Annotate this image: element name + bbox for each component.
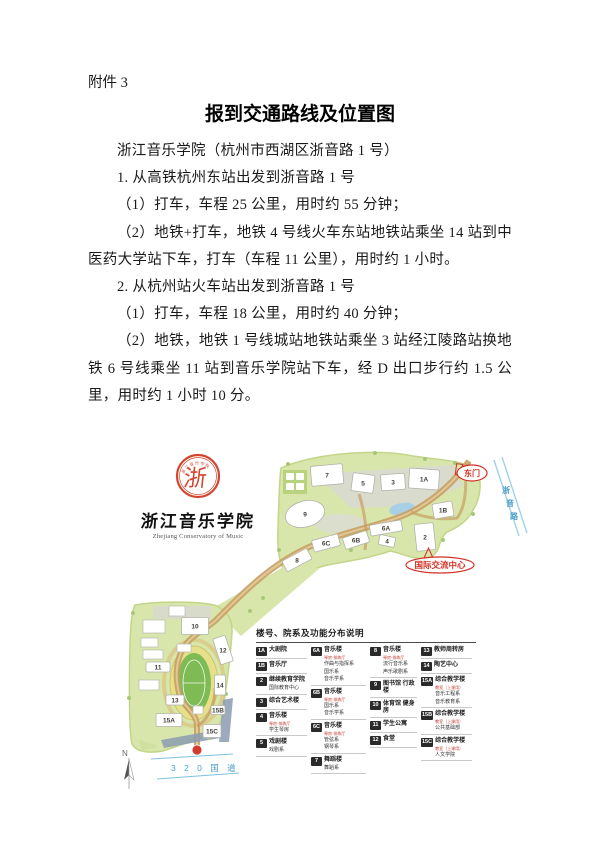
legend-entry-note: 琴房·排练厅 <box>269 721 290 726</box>
legend-entry-title: 音乐楼 <box>269 713 290 720</box>
legend-number-chip: 11 <box>370 721 381 730</box>
legend-entry-title: 音乐厅 <box>269 662 287 669</box>
legend-number-chip: 3 <box>256 698 267 707</box>
building-label-15B: 15B <box>212 707 224 714</box>
legend-entry-note: 教室（上课用） <box>435 719 465 724</box>
legend-number-chip: 1B <box>256 662 267 671</box>
building-label-7: 7 <box>325 472 329 479</box>
legend-entry-sub: 公共基础部 <box>435 725 465 732</box>
legend-entry-text: 戏剧楼戏剧系 <box>269 739 287 754</box>
logo-seal: 浙江音乐学院 浙 <box>138 452 258 500</box>
legend-number-chip: 5 <box>256 739 267 748</box>
legend-entry-text: 体育馆 健身房 <box>383 701 417 715</box>
legend-entry-sub: 作曲与指挥系 <box>324 661 354 668</box>
legend-column-1: 1A大剧院1B音乐厅2继续教育学院国际教育中心3综合艺术楼4音乐楼琴房·排练厅学… <box>256 647 311 777</box>
legend-number-chip: 7 <box>311 757 322 766</box>
legend-column-2: 6A音乐楼琴房·排练厅作曲与指挥系国乐系音乐学系6B音乐楼琴房·排练厅国乐系音乐… <box>311 647 370 777</box>
building-label-6C: 6C <box>322 540 331 547</box>
legend-entry-sub: 音乐工程系 <box>435 691 465 698</box>
building-label-2: 2 <box>423 534 427 541</box>
legend-entry-note: 琴房·排练厅 <box>324 697 345 702</box>
legend-number-chip: 12 <box>370 736 381 745</box>
legend-entry-text: 图书馆 行政楼 <box>383 681 417 695</box>
legend-number-chip: 15C <box>421 738 433 747</box>
body-paragraph: 1. 从高铁杭州东站出发到浙音路 1 号 <box>88 165 512 192</box>
building-label-8: 8 <box>295 557 299 564</box>
legend-entry-text: 音乐厅 <box>269 662 287 669</box>
legend-entry-sub: 音乐学系 <box>324 676 354 683</box>
document-text-block: 附件 3 报到交通路线及位置图 浙江音乐学院（杭州市西湖区浙音路 1 号）1. … <box>88 70 512 410</box>
legend-entry-sub: 声乐歌剧系 <box>383 669 408 676</box>
legend-entry-note: 教室（上课用） <box>435 685 465 690</box>
body-paragraph: （2）地铁，地铁 1 号线城站地铁站乘坐 3 站经江陵路站换地铁 6 号线乘坐 … <box>88 328 512 410</box>
legend-columns: 1A大剧院1B音乐厅2继续教育学院国际教育中心3综合艺术楼4音乐楼琴房·排练厅学… <box>256 647 476 777</box>
legend-number-chip: 15A <box>421 677 433 686</box>
legend-entry-6A: 6A音乐楼琴房·排练厅作曲与指挥系国乐系音乐学系 <box>311 647 366 686</box>
legend-entry-title: 音乐楼 <box>383 647 408 654</box>
legend-entry-text: 综合教学楼教室（上课用）人文学院 <box>435 738 465 759</box>
legend-entry-2: 2继续教育学院国际教育中心 <box>256 677 307 695</box>
legend-entry-11: 11学生公寓 <box>370 721 417 733</box>
legend-entry-sub: 国乐系 <box>324 703 345 710</box>
north-arrow: N <box>122 749 134 789</box>
building-label-1A: 1A <box>420 476 429 483</box>
legend-entry-14: 14陶艺中心 <box>421 662 472 674</box>
legend-entry-title: 舞蹈楼 <box>324 757 342 764</box>
svg-text:N: N <box>122 749 128 758</box>
legend-entry-sub: 钢琴系 <box>324 744 345 751</box>
building-label-10: 10 <box>191 623 199 630</box>
legend-entry-title: 音乐楼 <box>324 689 345 696</box>
legend-number-chip: 6B <box>311 689 322 698</box>
legend-entry-text: 食堂 <box>383 736 395 743</box>
legend-entry-10: 10体育馆 健身房 <box>370 701 417 718</box>
paragraph-list: 浙江音乐学院（杭州市西湖区浙音路 1 号）1. 从高铁杭州东站出发到浙音路 1 … <box>88 138 512 410</box>
legend-entry-6C: 6C音乐楼琴房·排练厅管弦系钢琴系 <box>311 723 366 754</box>
svg-text:路: 路 <box>510 511 519 521</box>
legend-entry-sub: 音乐学系 <box>324 710 345 717</box>
legend-entry-title: 食堂 <box>383 736 395 743</box>
body-paragraph: （1）打车，车程 18 公里，用时约 40 分钟； <box>88 301 512 328</box>
building-label-9: 9 <box>303 511 307 518</box>
legend-number-chip: 13 <box>421 647 432 656</box>
legend-number-chip: 6A <box>311 647 322 656</box>
legend-entry-9: 9图书馆 行政楼 <box>370 681 417 698</box>
building-label-12: 12 <box>219 647 227 654</box>
building-label-6A: 6A <box>382 525 391 532</box>
legend-entry-1B: 1B音乐厅 <box>256 662 307 674</box>
legend-entry-note: 教室（上课用） <box>435 746 465 751</box>
tennis-courts <box>283 470 307 494</box>
legend-entry-sub: 舞蹈系 <box>324 765 342 772</box>
legend-entry-text: 学生公寓 <box>383 721 407 728</box>
legend-entry-4: 4音乐楼琴房·排练厅学生琴房 <box>256 713 307 737</box>
legend-entry-text: 继续教育学院国际教育中心 <box>269 677 305 692</box>
legend-entry-title: 陶艺中心 <box>434 662 458 669</box>
building-label-6B: 6B <box>352 537 361 544</box>
legend-entry-15B: 15B综合教学楼教室（上课用）公共基础部 <box>421 711 472 735</box>
legend-entry-title: 音乐楼 <box>324 647 354 654</box>
legend-entry-text: 陶艺中心 <box>434 662 458 669</box>
body-paragraph: （1）打车，车程 25 公里，用时约 55 分钟； <box>88 192 512 219</box>
legend-entry-title: 戏剧楼 <box>269 739 287 746</box>
legend-number-chip: 1A <box>256 647 267 656</box>
building-label-14: 14 <box>216 682 224 689</box>
legend-entry-sub: 音乐教育系 <box>435 699 465 706</box>
legend-entry-sub: 戏剧系 <box>269 747 287 754</box>
legend-entry-6B: 6B音乐楼琴房·排练厅国乐系音乐学系 <box>311 689 366 720</box>
legend-entry-text: 教师周转房 <box>434 647 464 654</box>
legend-entry-text: 音乐楼琴房·排练厅学生琴房 <box>269 713 290 734</box>
legend-entry-text: 音乐楼琴房·排练厅国乐系音乐学系 <box>324 689 345 717</box>
map-legend: 楼号、院系及功能分布说明 1A大剧院1B音乐厅2继续教育学院国际教育中心3综合艺… <box>256 627 476 777</box>
legend-entry-text: 音乐楼琴房·排练厅管弦系钢琴系 <box>324 723 345 751</box>
legend-entry-sub: 学生琴房 <box>269 727 290 734</box>
building-label-15A: 15A <box>163 717 175 724</box>
intl-center-label: 国际交流中心 <box>414 560 466 570</box>
legend-title: 楼号、院系及功能分布说明 <box>256 627 476 643</box>
legend-number-chip: 4 <box>256 713 267 722</box>
legend-entry-title: 学生公寓 <box>383 721 407 728</box>
legend-entry-title: 体育馆 健身房 <box>383 701 417 715</box>
legend-entry-note: 琴房·排练厅 <box>383 655 408 660</box>
legend-entry-sub: 管弦系 <box>324 737 345 744</box>
national-road-label: 3 2 0 国 道 <box>171 763 239 773</box>
legend-column-4: 13教师周转房14陶艺中心15A综合教学楼教室（上课用）音乐工程系音乐教育系15… <box>421 647 476 777</box>
legend-entry-15A: 15A综合教学楼教室（上课用）音乐工程系音乐教育系 <box>421 677 472 708</box>
attachment-label: 附件 3 <box>88 70 512 96</box>
page-title: 报到交通路线及位置图 <box>88 100 512 130</box>
seal-monogram: 浙 <box>182 465 208 491</box>
legend-entry-15C: 15C综合教学楼教室（上课用）人文学院 <box>421 738 472 762</box>
east-gate-label: 东门 <box>464 468 480 478</box>
legend-entry-text: 舞蹈楼舞蹈系 <box>324 757 342 772</box>
building-label-13: 13 <box>171 697 179 704</box>
legend-entry-note: 琴房·排练厅 <box>324 655 354 660</box>
legend-entry-text: 综合教学楼教室（上课用）音乐工程系音乐教育系 <box>435 677 465 705</box>
building-label-11: 11 <box>155 664 162 671</box>
legend-entry-13: 13教师周转房 <box>421 647 472 659</box>
legend-number-chip: 8 <box>370 647 381 656</box>
legend-entry-title: 综合教学楼 <box>435 711 465 718</box>
legend-entry-title: 综合教学楼 <box>435 677 465 684</box>
legend-entry-sub: 国际教育中心 <box>269 685 305 692</box>
svg-text:音: 音 <box>506 498 514 508</box>
building-label-1B: 1B <box>439 507 448 514</box>
legend-entry-text: 大剧院 <box>269 647 287 654</box>
legend-entry-5: 5戏剧楼戏剧系 <box>256 739 307 757</box>
legend-entry-title: 大剧院 <box>269 647 287 654</box>
legend-entry-text: 音乐楼琴房·排练厅作曲与指挥系国乐系音乐学系 <box>324 647 354 683</box>
legend-entry-text: 综合艺术楼 <box>269 698 299 705</box>
zheyin-road-lines <box>494 457 527 536</box>
legend-entry-title: 综合教学楼 <box>435 738 465 745</box>
body-paragraph: （2）地铁+打车，地铁 4 号线火车东站地铁站乘坐 14 站到中医药大学站下车，… <box>88 220 512 274</box>
legend-number-chip: 6C <box>311 723 322 732</box>
legend-number-chip: 15B <box>421 711 433 720</box>
legend-entry-7: 7舞蹈楼舞蹈系 <box>311 757 366 775</box>
south-gate-marker <box>192 745 202 755</box>
building-label-15C: 15C <box>206 728 218 735</box>
legend-entry-3: 3综合艺术楼 <box>256 698 307 710</box>
building-label-5: 5 <box>361 480 365 487</box>
legend-entry-title: 继续教育学院 <box>269 677 305 684</box>
legend-entry-sub: 流行音乐系 <box>383 661 408 668</box>
school-logo: 浙江音乐学院 浙 浙江音乐学院 Zhejiang Conservatory of… <box>138 452 258 540</box>
legend-number-chip: 9 <box>370 681 381 690</box>
legend-entry-note: 琴房·排练厅 <box>324 731 345 736</box>
legend-column-3: 8音乐楼琴房·排练厅流行音乐系声乐歌剧系9图书馆 行政楼10体育馆 健身房11学… <box>370 647 421 777</box>
building-label-4: 4 <box>385 538 389 545</box>
body-paragraph: 浙江音乐学院（杭州市西湖区浙音路 1 号） <box>88 138 512 165</box>
legend-entry-title: 教师周转房 <box>434 647 464 654</box>
legend-entry-title: 图书馆 行政楼 <box>383 681 417 695</box>
legend-entry-sub: 人文学院 <box>435 752 465 759</box>
legend-entry-title: 综合艺术楼 <box>269 698 299 705</box>
legend-entry-title: 音乐楼 <box>324 723 345 730</box>
legend-entry-8: 8音乐楼琴房·排练厅流行音乐系声乐歌剧系 <box>370 647 417 678</box>
legend-entry-text: 音乐楼琴房·排练厅流行音乐系声乐歌剧系 <box>383 647 408 675</box>
legend-entry-1A: 1A大剧院 <box>256 647 307 659</box>
logo-name-en: Zhejiang Conservatory of Music <box>138 533 258 540</box>
svg-text:浙: 浙 <box>502 485 510 495</box>
body-paragraph: 2. 从杭州站火车站出发到浙音路 1 号 <box>88 274 512 301</box>
legend-entry-text: 综合教学楼教室（上课用）公共基础部 <box>435 711 465 732</box>
legend-number-chip: 2 <box>256 677 267 686</box>
legend-entry-12: 12食堂 <box>370 736 417 748</box>
legend-number-chip: 14 <box>421 662 432 671</box>
legend-number-chip: 10 <box>370 701 381 710</box>
logo-name-cn: 浙江音乐学院 <box>137 507 259 532</box>
building-label-3: 3 <box>391 479 395 486</box>
legend-entry-sub: 国乐系 <box>324 669 354 676</box>
